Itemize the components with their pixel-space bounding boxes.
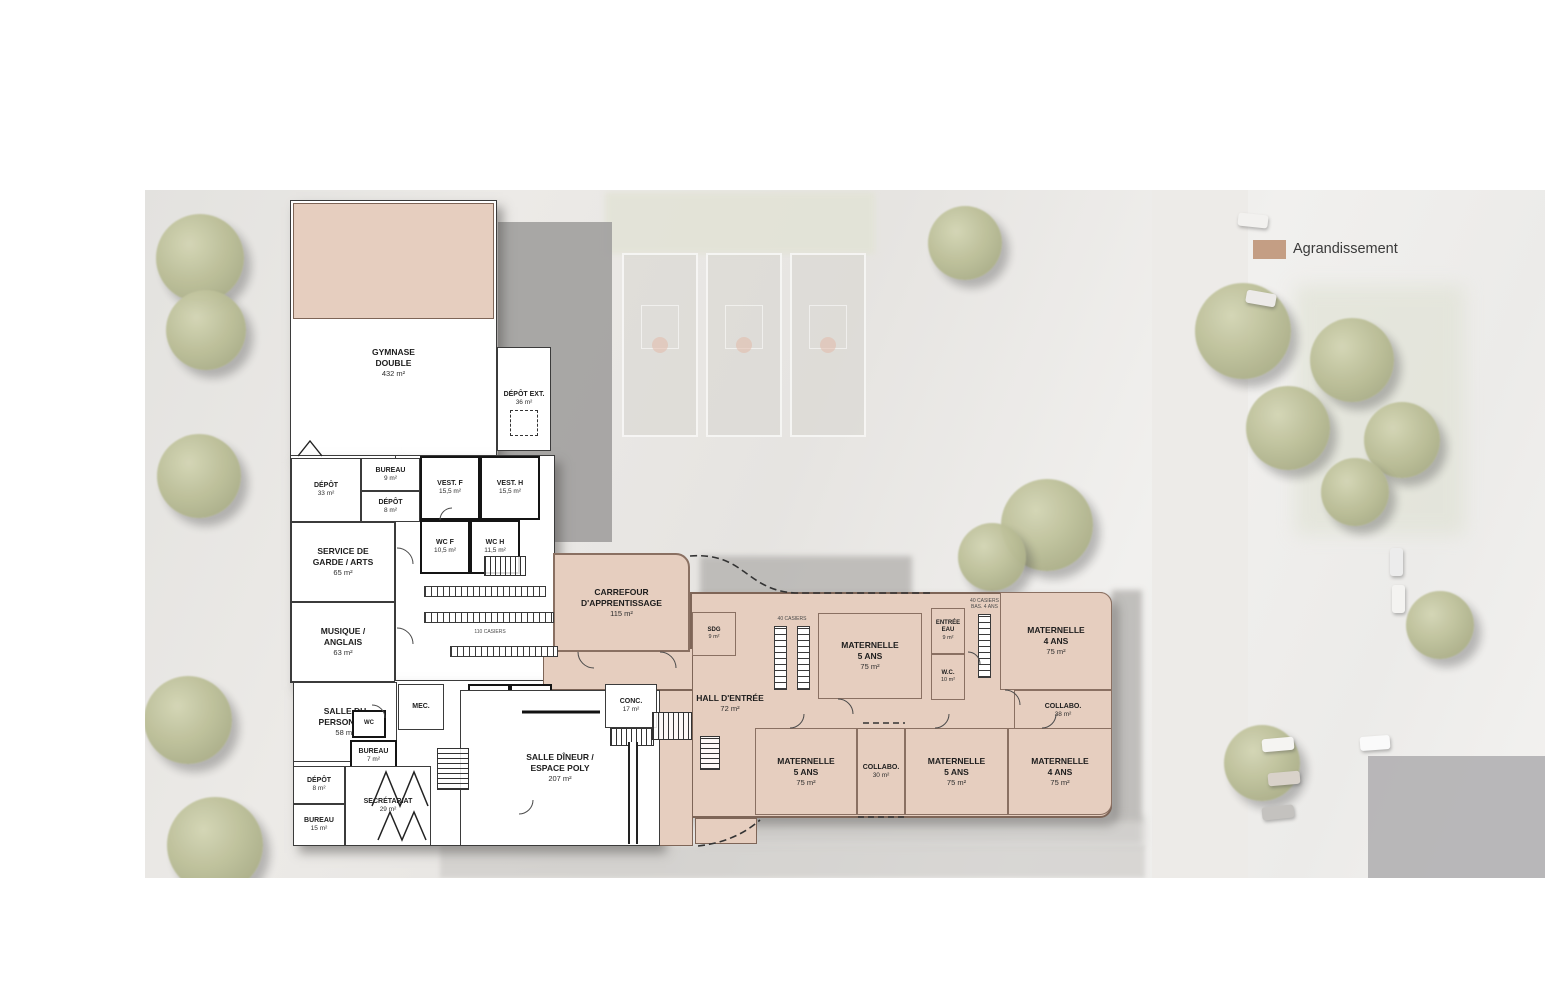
room-secretariat: SECRÉTARIAT29 m² xyxy=(345,766,431,846)
room-collabo-38: COLLABO.38 m² xyxy=(1014,690,1112,732)
room-maternelle-5ans-nord: MATERNELLE 5 ANS75 m² xyxy=(818,613,922,699)
room-hall-entree: HALL D'ENTRÉE 72 m² xyxy=(680,682,780,725)
tree xyxy=(166,290,246,370)
lockers-row xyxy=(450,646,558,657)
wing-shadow xyxy=(1112,590,1142,822)
room-vest-h: VEST. H15,5 m² xyxy=(480,456,540,520)
court-center xyxy=(820,337,836,353)
room-collabo-30: COLLABO.30 m² xyxy=(857,728,905,815)
neighbor-roof xyxy=(1368,756,1545,878)
wing-shadow xyxy=(700,816,1144,846)
lockers-count-label: 40 CASIERS xyxy=(762,616,822,622)
new-entry-vestibule xyxy=(695,818,757,844)
lockers-count-label: 110 CASIERS xyxy=(455,629,525,635)
tree xyxy=(928,206,1002,280)
grass-area xyxy=(605,192,875,254)
lockers-column xyxy=(774,626,787,690)
stairs xyxy=(484,556,526,576)
legend-agrandissement-label: Agrandissement xyxy=(1293,241,1398,257)
tree xyxy=(167,797,263,878)
car xyxy=(1360,735,1391,751)
room-maternelle-5ans-sud-ouest: MATERNELLE 5 ANS75 m² xyxy=(755,728,857,815)
stairs xyxy=(437,748,469,790)
room-carrefour-apprentissage: CARREFOUR D'APPRENTISSAGE115 m² xyxy=(553,553,690,652)
tree xyxy=(1310,318,1394,402)
legend-agrandissement-swatch xyxy=(1253,240,1286,259)
car xyxy=(1392,585,1405,613)
room-vest-f: VEST. F15,5 m² xyxy=(420,456,480,520)
tree xyxy=(1246,386,1330,470)
room-depot-33: DÉPÔT33 m² xyxy=(291,458,361,522)
tree xyxy=(1321,458,1389,526)
playground-court xyxy=(706,253,782,437)
room-mecanique: MEC. xyxy=(398,684,444,730)
car xyxy=(1261,804,1294,820)
depot-ext-hatch xyxy=(510,410,538,436)
room-sdg: SDG9 m² xyxy=(692,612,736,656)
room-service-garde-arts: SERVICE DE GARDE / ARTS65 m² xyxy=(291,522,395,602)
room-wc-f: WC F10,5 m² xyxy=(420,520,470,574)
guardrail xyxy=(628,742,638,844)
room-wc-small: WC xyxy=(352,710,386,738)
lockers-count-label: 40 CASIERS BAS. 4 ANS xyxy=(962,598,1007,611)
tree xyxy=(157,434,241,518)
court-center xyxy=(736,337,752,353)
room-bureau-15: BUREAU15 m² xyxy=(293,804,345,846)
tree xyxy=(145,676,232,764)
lockers-column xyxy=(797,626,810,690)
room-concierge: CONC.17 m² xyxy=(605,684,657,728)
stairs xyxy=(652,712,692,740)
room-gymnase-double: GYMNASE DOUBLE 432 m² xyxy=(290,336,497,390)
lockers-column xyxy=(978,614,991,678)
room-maternelle-4ans-nord: MATERNELLE 4 ANS75 m² xyxy=(1000,592,1112,690)
room-maternelle-5ans-sud: MATERNELLE 5 ANS75 m² xyxy=(905,728,1008,815)
room-maternelle-4ans-sud: MATERNELLE 4 ANS75 m² xyxy=(1008,728,1112,815)
sidewalk xyxy=(440,845,1145,878)
room-label: GYMNASE DOUBLE xyxy=(372,347,415,368)
room-musique-anglais: MUSIQUE / ANGLAIS63 m² xyxy=(291,602,395,682)
room-area: 432 m² xyxy=(290,369,497,379)
tree xyxy=(1195,283,1291,379)
tree xyxy=(1406,591,1474,659)
room-depot-8b: DÉPÔT8 m² xyxy=(293,766,345,804)
room-bureau-9: BUREAU9 m² xyxy=(361,458,420,491)
lockers-row xyxy=(424,612,554,623)
room-depot-8: DÉPÔT8 m² xyxy=(361,491,420,522)
court-center xyxy=(652,337,668,353)
car xyxy=(1261,737,1294,753)
car xyxy=(1390,548,1403,576)
car xyxy=(1267,771,1300,787)
gymnasium-extension-area xyxy=(293,203,494,319)
stairs xyxy=(700,736,720,770)
tree xyxy=(156,214,244,302)
lockers-row xyxy=(424,586,546,597)
room-wc-wing: W.C.10 m² xyxy=(931,654,965,700)
site-plan-canvas: GYMNASE DOUBLE 432 m² DÉPÔT EXT.36 m² DÉ… xyxy=(0,0,1545,1000)
playground-court xyxy=(622,253,698,437)
playground-court xyxy=(790,253,866,437)
room-entree-eau: ENTRÉE EAU9 m² xyxy=(931,608,965,654)
tree xyxy=(958,523,1026,591)
